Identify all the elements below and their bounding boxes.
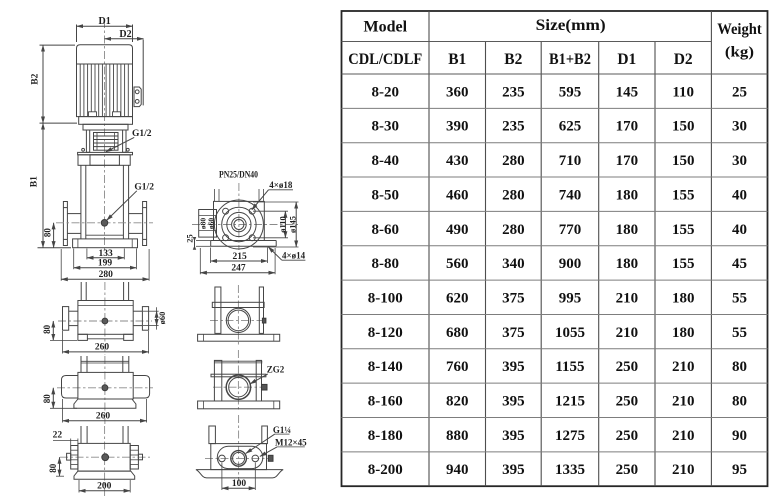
svg-text:625: 625 — [559, 119, 582, 135]
svg-text:170: 170 — [616, 119, 639, 135]
svg-text:Size(mm): Size(mm) — [536, 17, 606, 34]
svg-text:B1+B2: B1+B2 — [549, 51, 591, 68]
svg-text:210: 210 — [672, 359, 695, 375]
svg-text:40: 40 — [732, 222, 747, 238]
svg-text:235: 235 — [502, 84, 525, 100]
svg-text:180: 180 — [616, 222, 639, 238]
svg-text:155: 155 — [672, 256, 695, 272]
svg-text:880: 880 — [446, 428, 469, 444]
svg-text:235: 235 — [502, 119, 525, 135]
svg-text:8-60: 8-60 — [372, 222, 400, 238]
svg-text:ø60: ø60 — [157, 312, 167, 325]
svg-text:180: 180 — [672, 325, 695, 341]
svg-text:B2: B2 — [31, 73, 41, 84]
svg-text:133: 133 — [98, 249, 113, 259]
svg-text:D2: D2 — [674, 51, 693, 68]
svg-text:940: 940 — [446, 462, 469, 478]
svg-text:Weight: Weight — [717, 21, 762, 38]
svg-text:155: 155 — [672, 187, 695, 203]
svg-text:B1: B1 — [448, 51, 466, 68]
svg-text:250: 250 — [616, 462, 639, 478]
svg-text:210: 210 — [672, 428, 695, 444]
svg-text:900: 900 — [559, 256, 582, 272]
svg-text:8-100: 8-100 — [368, 291, 403, 307]
svg-text:Model: Model — [363, 19, 407, 36]
svg-text:250: 250 — [616, 394, 639, 410]
svg-text:1335: 1335 — [555, 462, 585, 478]
svg-text:180: 180 — [616, 256, 639, 272]
svg-text:80: 80 — [732, 359, 747, 375]
svg-text:280: 280 — [502, 153, 525, 169]
svg-text:740: 740 — [559, 187, 582, 203]
svg-text:4×ø14: 4×ø14 — [282, 251, 306, 261]
svg-text:30: 30 — [732, 119, 747, 135]
svg-text:8-80: 8-80 — [372, 256, 400, 272]
svg-text:180: 180 — [616, 187, 639, 203]
svg-text:210: 210 — [616, 291, 639, 307]
svg-text:200: 200 — [97, 482, 112, 492]
svg-text:430: 430 — [446, 153, 469, 169]
svg-text:145: 145 — [616, 84, 639, 100]
svg-text:620: 620 — [446, 291, 469, 307]
svg-text:395: 395 — [502, 394, 525, 410]
svg-text:250: 250 — [616, 359, 639, 375]
svg-text:460: 460 — [446, 187, 469, 203]
svg-text:80: 80 — [42, 394, 52, 404]
svg-text:95: 95 — [732, 462, 747, 478]
svg-text:D1: D1 — [98, 16, 110, 27]
svg-text:100: 100 — [232, 479, 247, 489]
svg-text:280: 280 — [502, 222, 525, 238]
svg-text:360: 360 — [446, 84, 469, 100]
svg-text:155: 155 — [672, 222, 695, 238]
svg-text:1155: 1155 — [555, 359, 584, 375]
svg-text:340: 340 — [502, 256, 525, 272]
svg-text:247: 247 — [231, 263, 246, 273]
svg-text:199: 199 — [98, 259, 113, 269]
svg-text:25: 25 — [185, 234, 195, 243]
svg-text:280: 280 — [502, 187, 525, 203]
svg-text:150: 150 — [672, 153, 695, 169]
svg-text:390: 390 — [446, 119, 469, 135]
svg-text:8-140: 8-140 — [368, 359, 403, 375]
svg-text:55: 55 — [732, 291, 747, 307]
svg-text:210: 210 — [672, 394, 695, 410]
svg-text:30: 30 — [732, 153, 747, 169]
svg-text:215: 215 — [232, 252, 247, 262]
svg-text:B1: B1 — [30, 176, 40, 187]
svg-text:ø60: ø60 — [207, 218, 216, 230]
svg-text:8-160: 8-160 — [368, 394, 403, 410]
svg-text:22: 22 — [53, 430, 63, 440]
svg-text:(kg): (kg) — [725, 44, 754, 60]
svg-text:8-180: 8-180 — [368, 428, 403, 444]
svg-text:45: 45 — [732, 256, 747, 272]
svg-text:55: 55 — [732, 325, 747, 341]
svg-text:490: 490 — [446, 222, 469, 238]
svg-text:560: 560 — [446, 256, 469, 272]
svg-text:ø145: ø145 — [288, 216, 298, 233]
svg-text:4×ø18: 4×ø18 — [269, 180, 293, 190]
svg-text:G1/2: G1/2 — [132, 129, 152, 139]
svg-text:210: 210 — [672, 462, 695, 478]
svg-text:210: 210 — [616, 325, 639, 341]
svg-text:710: 710 — [559, 153, 582, 169]
svg-text:PN25/DN40: PN25/DN40 — [219, 170, 258, 180]
svg-text:80: 80 — [42, 324, 52, 334]
svg-text:80: 80 — [48, 463, 58, 473]
svg-text:8-50: 8-50 — [372, 187, 400, 203]
svg-text:150: 150 — [672, 119, 695, 135]
svg-text:820: 820 — [446, 394, 469, 410]
svg-text:760: 760 — [446, 359, 469, 375]
svg-text:D1: D1 — [617, 51, 636, 68]
svg-text:G1/2: G1/2 — [134, 183, 154, 193]
svg-text:680: 680 — [446, 325, 469, 341]
svg-text:1275: 1275 — [555, 428, 585, 444]
svg-text:395: 395 — [502, 359, 525, 375]
svg-text:ZG2: ZG2 — [267, 365, 285, 375]
svg-text:110: 110 — [672, 84, 694, 100]
svg-text:395: 395 — [502, 428, 525, 444]
svg-text:1055: 1055 — [555, 325, 585, 341]
svg-text:260: 260 — [96, 412, 111, 422]
svg-text:8-200: 8-200 — [368, 462, 403, 478]
svg-text:995: 995 — [559, 291, 582, 307]
svg-text:595: 595 — [559, 84, 582, 100]
svg-text:80: 80 — [43, 228, 53, 238]
svg-text:ø110: ø110 — [277, 216, 287, 233]
svg-text:8-30: 8-30 — [372, 119, 400, 135]
svg-text:375: 375 — [502, 291, 525, 307]
svg-text:90: 90 — [732, 428, 747, 444]
svg-text:8-120: 8-120 — [368, 325, 403, 341]
svg-text:B2: B2 — [504, 51, 522, 68]
svg-text:25: 25 — [732, 84, 747, 100]
svg-text:M12×45: M12×45 — [275, 438, 307, 448]
svg-text:395: 395 — [502, 462, 525, 478]
svg-text:260: 260 — [95, 343, 110, 353]
svg-text:80: 80 — [732, 394, 747, 410]
svg-text:375: 375 — [502, 325, 525, 341]
svg-text:D2: D2 — [119, 29, 131, 40]
svg-text:250: 250 — [616, 428, 639, 444]
svg-text:8-40: 8-40 — [372, 153, 400, 169]
svg-text:170: 170 — [616, 153, 639, 169]
svg-text:G1¼: G1¼ — [273, 425, 292, 435]
svg-text:CDL/CDLF: CDL/CDLF — [348, 51, 422, 68]
svg-text:770: 770 — [559, 222, 582, 238]
svg-text:8-20: 8-20 — [372, 84, 400, 100]
svg-text:180: 180 — [672, 291, 695, 307]
svg-text:280: 280 — [99, 270, 114, 280]
svg-text:1215: 1215 — [555, 394, 585, 410]
svg-text:40: 40 — [732, 187, 747, 203]
